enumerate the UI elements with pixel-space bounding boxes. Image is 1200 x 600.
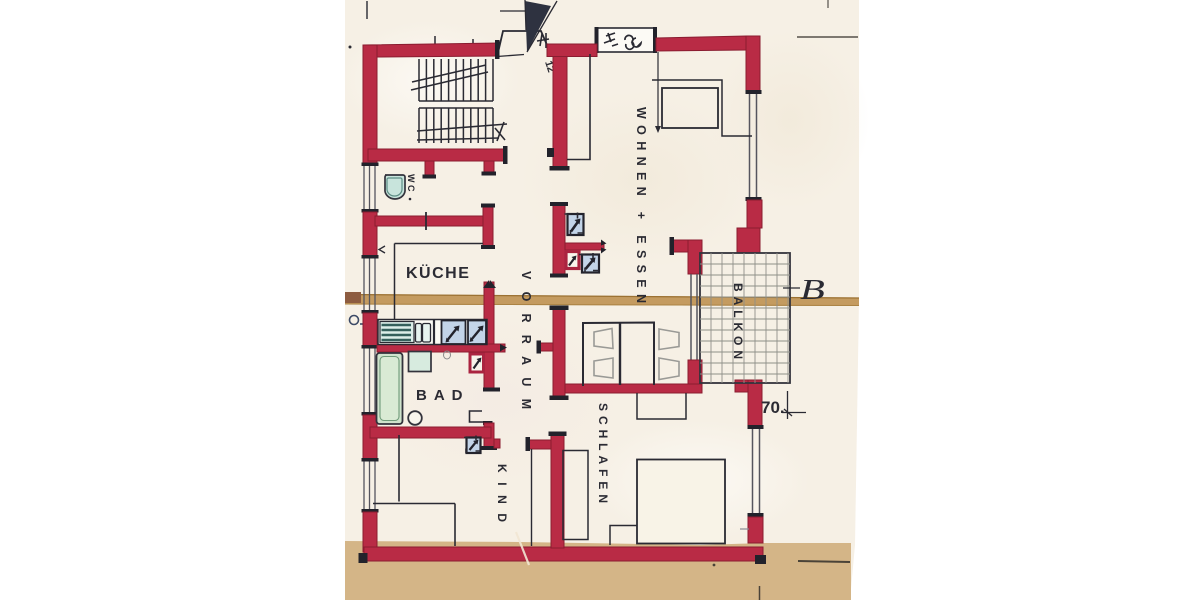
svg-text:B: B	[800, 274, 825, 306]
svg-text:70.: 70.	[761, 398, 785, 417]
svg-text:KÜCHE: KÜCHE	[406, 263, 470, 282]
svg-text:WC: WC	[406, 174, 416, 194]
svg-text:BAD: BAD	[416, 387, 470, 404]
